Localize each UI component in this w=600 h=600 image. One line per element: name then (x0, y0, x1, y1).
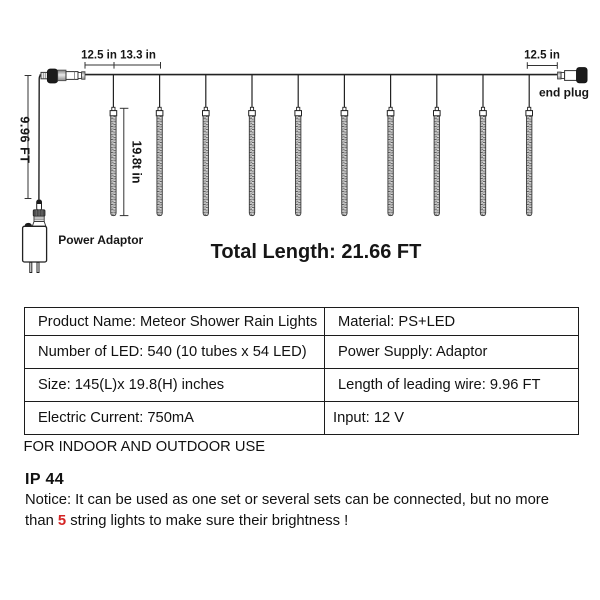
svg-text:Power Adaptor: Power Adaptor (58, 233, 143, 247)
svg-text:13.3 in: 13.3 in (120, 50, 156, 62)
svg-text:end plug: end plug (539, 86, 589, 100)
svg-text:Total Length: 21.66 FT: Total Length: 21.66 FT (211, 241, 422, 263)
svg-text:19.8t in: 19.8t in (129, 140, 143, 183)
svg-text:9.96 FT: 9.96 FT (18, 116, 32, 163)
svg-text:12.5 in: 12.5 in (524, 50, 560, 62)
svg-text:12.5 in: 12.5 in (81, 50, 117, 62)
